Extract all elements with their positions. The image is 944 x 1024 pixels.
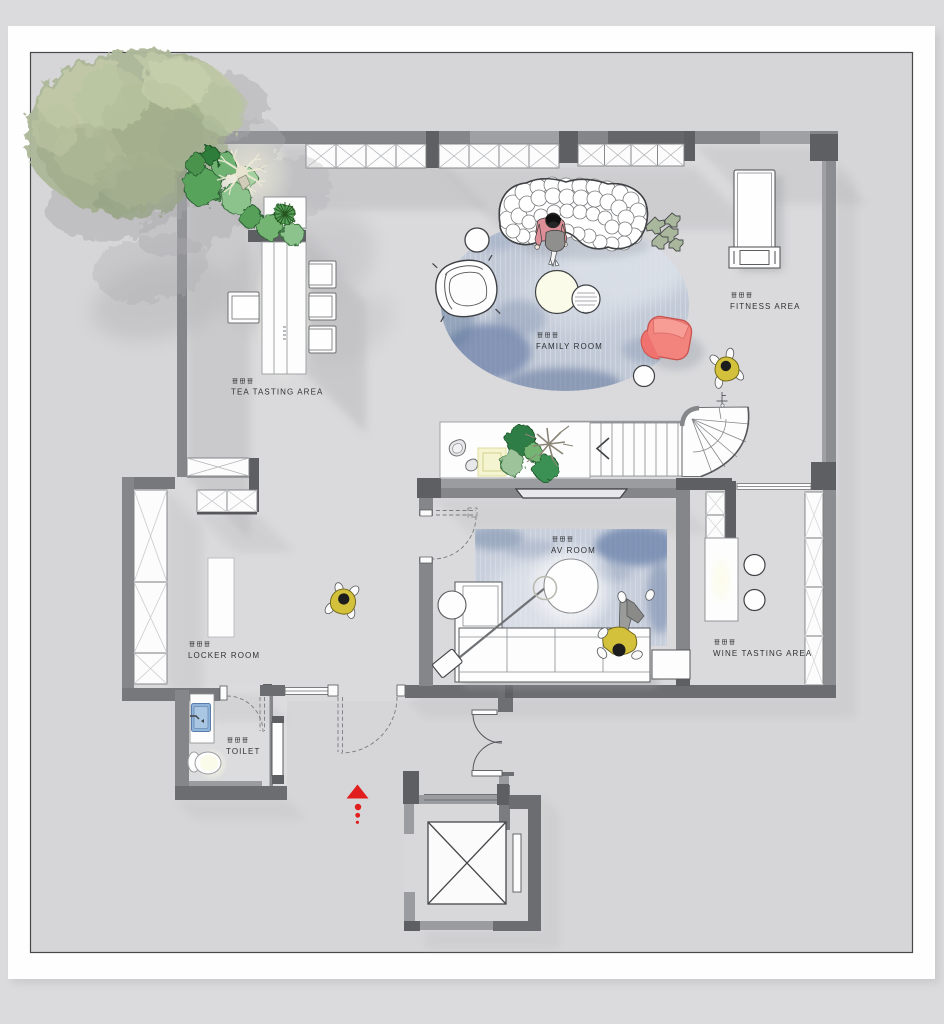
svg-text:TOILET: TOILET (226, 747, 260, 756)
svg-text:AV ROOM: AV ROOM (551, 546, 596, 555)
svg-text:TEA TASTING AREA: TEA TASTING AREA (231, 388, 323, 397)
svg-text:WINE TASTING AREA: WINE TASTING AREA (713, 649, 812, 658)
svg-text:LOCKER ROOM: LOCKER ROOM (188, 651, 260, 660)
svg-text:FITNESS AREA: FITNESS AREA (730, 302, 801, 311)
svg-text:FAMILY ROOM: FAMILY ROOM (536, 342, 603, 351)
